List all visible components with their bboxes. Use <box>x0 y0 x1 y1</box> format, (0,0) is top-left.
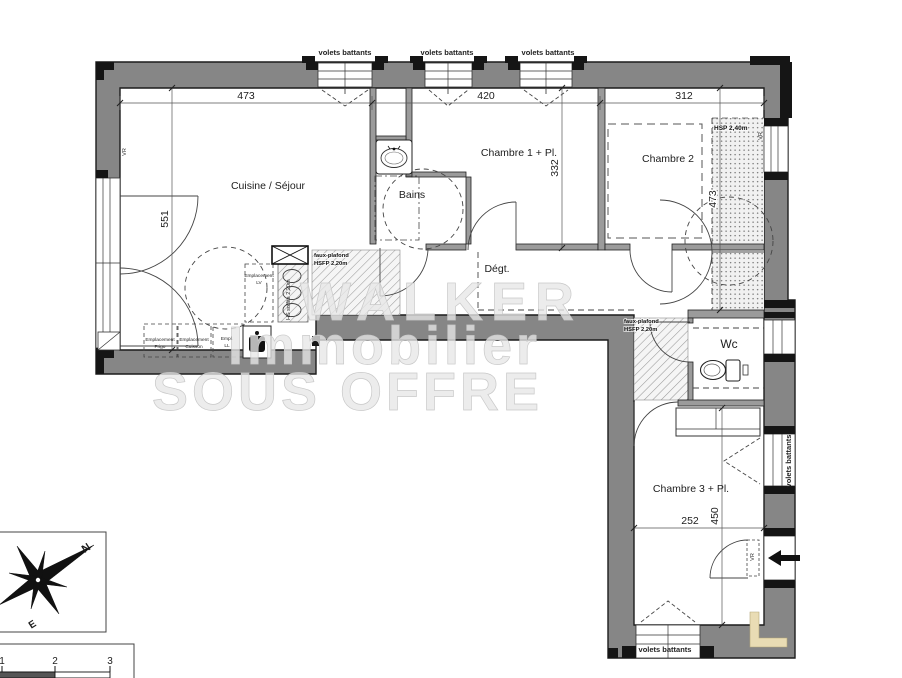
dim-top-right: 312 <box>675 90 693 102</box>
empl-lv-line2: LV <box>256 280 262 286</box>
vr-label-entry: VR <box>750 553 756 561</box>
bed-chambre2 <box>608 124 702 238</box>
soffite-label: HS soffite 2,20m <box>286 279 292 320</box>
watermark-line3: SOUS OFFRE <box>152 362 543 422</box>
room-label-cuisine: Cuisine / Séjour <box>231 180 306 192</box>
closet-chambre3 <box>676 408 760 436</box>
toilet <box>701 360 749 381</box>
scale-tick-3: 3 <box>107 656 113 667</box>
empl-lv-line1: Emplacement <box>244 273 274 279</box>
volets-label-1: volets battants <box>319 48 372 57</box>
empl-cuisson-line1: Emplacement <box>179 337 209 343</box>
scale-tick-2: 2 <box>52 656 58 667</box>
empl-frigo-line1: Emplacement <box>145 337 175 343</box>
volets-label-2: volets battants <box>421 48 474 57</box>
window-top-2 <box>425 63 472 106</box>
vr-label-left: VR <box>122 148 128 156</box>
faux-plafond-2-line1: faux-plafond <box>624 319 659 325</box>
window-top-1 <box>318 63 372 106</box>
dim-top-left: 473 <box>237 90 255 102</box>
bathroom-sink <box>376 140 412 174</box>
volets-label-bottom: volets battants <box>639 645 692 654</box>
faux-plafond-1-line2: HSFP 2,20m <box>314 261 347 267</box>
french-window-left <box>96 178 198 348</box>
scale-bar: 1 2 3 <box>0 644 134 678</box>
dim-right-height: 473 <box>707 190 719 208</box>
window-return <box>98 332 120 350</box>
window-right-top <box>764 126 788 172</box>
volets-label-right: volets battants <box>784 435 793 488</box>
room-label-wc: Wc <box>720 337 737 351</box>
empl-cuisson-line2: Cuisson <box>185 344 203 350</box>
shower-zone <box>375 176 419 240</box>
scale-tick-1: 1 <box>0 656 5 667</box>
window-wc <box>764 320 795 354</box>
watermark: WALKER Immobilier SOUS OFFRE <box>152 272 582 422</box>
room-label-chambre1: Chambre 1 + Pl. <box>481 147 557 159</box>
empl-frigo-line2: Frigo <box>155 344 166 350</box>
faux-plafond-1-line1: faux-plafond <box>314 253 349 259</box>
floorplan-drawing: 473 420 312 551 332 473 450 252 Cuisine … <box>0 0 902 678</box>
technical-duct <box>272 246 308 264</box>
dim-left-height: 551 <box>159 210 171 228</box>
room-label-chambre3: Chambre 3 + Pl. <box>653 483 729 495</box>
dim-chambre1-height: 332 <box>549 159 561 177</box>
floorplan-page: 473 420 312 551 332 473 450 252 Cuisine … <box>0 0 902 678</box>
window-top-3 <box>520 63 572 106</box>
hsp-label: HSP 2,40m <box>714 125 748 132</box>
room-label-bains: Bains <box>399 189 425 201</box>
dim-chambre3-width: 252 <box>681 515 699 527</box>
faux-plafond-2-line2: HSFP 2,20m <box>624 327 657 333</box>
dim-chambre3-height: 450 <box>709 507 721 525</box>
dim-top-center: 420 <box>477 90 495 102</box>
compass: N E <box>0 532 106 632</box>
room-label-chambre2: Chambre 2 <box>642 153 694 165</box>
volets-label-3: volets battants <box>522 48 575 57</box>
vr-label-right-top: VR <box>758 132 764 140</box>
